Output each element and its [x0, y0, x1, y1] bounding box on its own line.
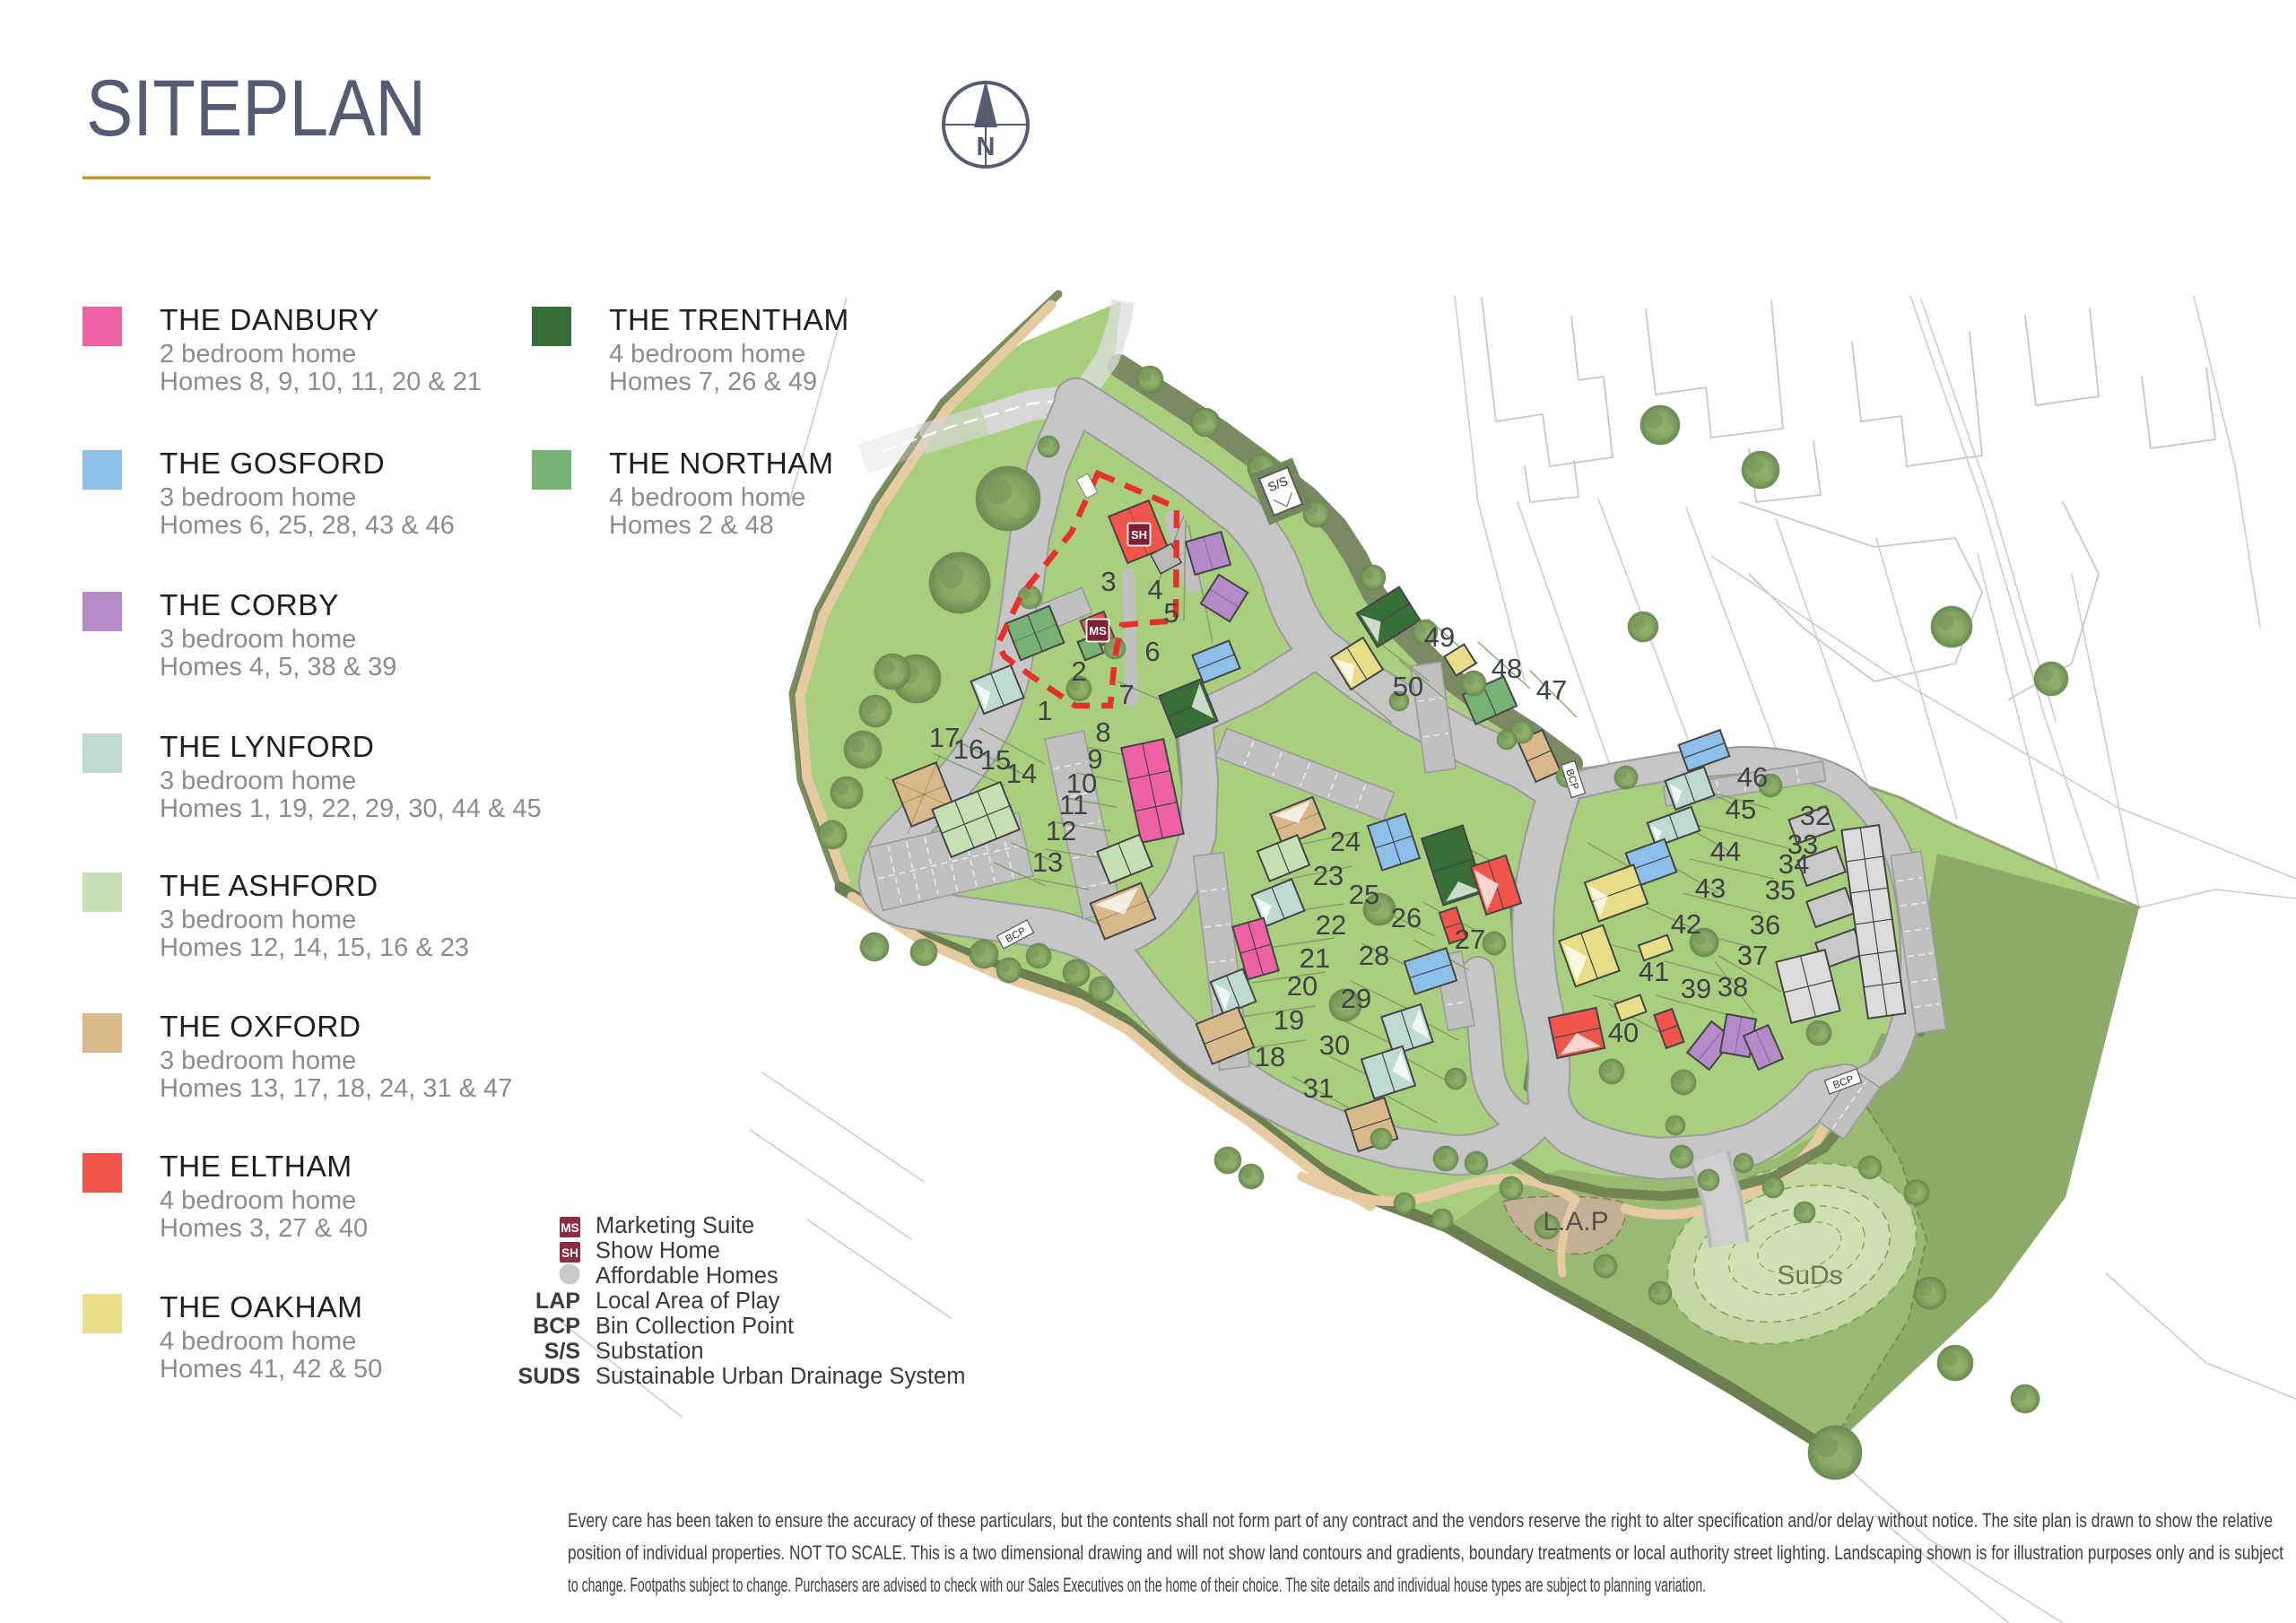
svg-text:42: 42 — [1671, 908, 1701, 940]
svg-text:29: 29 — [1341, 983, 1371, 1014]
svg-text:MS: MS — [1089, 624, 1107, 638]
svg-text:17: 17 — [929, 722, 960, 753]
svg-text:48: 48 — [1492, 653, 1522, 684]
svg-text:Homes 4, 5, 38 & 39: Homes 4, 5, 38 & 39 — [160, 653, 396, 681]
svg-text:SITEPLAN: SITEPLAN — [86, 63, 426, 152]
svg-text:Substation: Substation — [596, 1339, 704, 1364]
svg-text:Sustainable Urban Drainage Sys: Sustainable Urban Drainage System — [596, 1364, 965, 1389]
svg-text:40: 40 — [1608, 1017, 1639, 1048]
svg-text:47: 47 — [1536, 674, 1567, 706]
svg-text:Local Area of Play: Local Area of Play — [596, 1289, 780, 1314]
svg-text:45: 45 — [1726, 794, 1756, 825]
svg-text:32: 32 — [1800, 800, 1831, 831]
svg-text:SuDs: SuDs — [1777, 1261, 1842, 1290]
svg-text:30: 30 — [1319, 1029, 1350, 1061]
svg-text:20: 20 — [1287, 970, 1318, 1002]
svg-text:position of individual propert: position of individual properties. NOT T… — [568, 1541, 2283, 1564]
svg-text:to change. Footpaths subject t: to change. Footpaths subject to change. … — [568, 1574, 1706, 1596]
svg-text:MS: MS — [561, 1221, 578, 1235]
svg-text:49: 49 — [1424, 621, 1455, 653]
svg-text:Marketing Suite: Marketing Suite — [596, 1213, 754, 1238]
svg-text:THE TRENTHAM: THE TRENTHAM — [609, 304, 849, 337]
svg-text:4 bedroom home: 4 bedroom home — [609, 483, 805, 512]
svg-text:28: 28 — [1359, 940, 1389, 971]
svg-text:12: 12 — [1046, 815, 1076, 846]
svg-text:27: 27 — [1455, 924, 1485, 955]
svg-text:SH: SH — [1131, 528, 1147, 542]
svg-text:15: 15 — [980, 744, 1011, 776]
svg-text:1: 1 — [1037, 695, 1052, 726]
svg-text:3 bedroom home: 3 bedroom home — [160, 625, 356, 654]
svg-text:Affordable Homes: Affordable Homes — [596, 1263, 778, 1289]
svg-text:THE DANBURY: THE DANBURY — [160, 304, 379, 337]
svg-text:25: 25 — [1349, 879, 1379, 910]
svg-text:23: 23 — [1313, 860, 1344, 891]
svg-text:N: N — [977, 133, 996, 161]
svg-text:Homes 1, 19, 22, 29, 30, 44 &: Homes 1, 19, 22, 29, 30, 44 & 45 — [160, 794, 542, 823]
svg-text:THE CORBY: THE CORBY — [160, 589, 339, 622]
svg-text:36: 36 — [1750, 909, 1780, 941]
svg-text:Homes 7, 26 & 49: Homes 7, 26 & 49 — [609, 368, 817, 396]
svg-text:4 bedroom home: 4 bedroom home — [160, 1327, 356, 1356]
svg-text:3 bedroom home: 3 bedroom home — [160, 767, 356, 795]
svg-text:21: 21 — [1300, 942, 1330, 974]
svg-text:3 bedroom home: 3 bedroom home — [160, 483, 356, 512]
svg-text:THE NORTHAM: THE NORTHAM — [609, 447, 834, 481]
svg-text:Every care has been taken to e: Every care has been taken to ensure the … — [568, 1509, 2273, 1532]
svg-text:35: 35 — [1765, 874, 1796, 906]
svg-text:24: 24 — [1330, 826, 1361, 857]
svg-text:Homes 3, 27 & 40: Homes 3, 27 & 40 — [160, 1214, 368, 1243]
svg-text:22: 22 — [1316, 909, 1346, 941]
svg-text:S/S: S/S — [544, 1339, 580, 1364]
svg-text:18: 18 — [1255, 1041, 1285, 1072]
svg-text:7: 7 — [1118, 679, 1134, 710]
svg-text:4: 4 — [1147, 574, 1162, 605]
svg-text:2 bedroom home: 2 bedroom home — [160, 340, 356, 369]
svg-text:THE OAKHAM: THE OAKHAM — [160, 1291, 363, 1324]
svg-text:46: 46 — [1737, 761, 1768, 793]
svg-text:2: 2 — [1071, 655, 1086, 687]
svg-text:31: 31 — [1303, 1072, 1334, 1104]
svg-text:L.A.P: L.A.P — [1543, 1207, 1608, 1237]
svg-text:THE ASHFORD: THE ASHFORD — [160, 870, 378, 903]
svg-text:BCP: BCP — [533, 1314, 580, 1339]
svg-text:41: 41 — [1639, 956, 1669, 987]
svg-text:44: 44 — [1710, 836, 1741, 867]
svg-text:Homes 6, 25, 28, 43 & 46: Homes 6, 25, 28, 43 & 46 — [160, 511, 455, 540]
svg-text:Homes 8, 9, 10, 11, 20 & 21: Homes 8, 9, 10, 11, 20 & 21 — [160, 368, 482, 396]
svg-text:THE ELTHAM: THE ELTHAM — [160, 1150, 352, 1184]
svg-text:Homes 13, 17, 18, 24, 31 & 47: Homes 13, 17, 18, 24, 31 & 47 — [160, 1074, 512, 1103]
svg-text:3 bedroom home: 3 bedroom home — [160, 906, 356, 934]
svg-text:LAP: LAP — [535, 1289, 580, 1314]
svg-text:37: 37 — [1737, 940, 1768, 971]
svg-text:SH: SH — [561, 1246, 578, 1260]
svg-text:5: 5 — [1163, 597, 1178, 629]
svg-text:26: 26 — [1391, 902, 1422, 933]
svg-text:13: 13 — [1032, 846, 1063, 878]
svg-text:Homes 2 & 48: Homes 2 & 48 — [609, 511, 774, 540]
svg-text:3: 3 — [1100, 566, 1116, 597]
svg-text:4 bedroom home: 4 bedroom home — [160, 1186, 356, 1215]
svg-text:3 bedroom home: 3 bedroom home — [160, 1046, 356, 1075]
svg-text:6: 6 — [1144, 636, 1160, 667]
svg-text:THE OXFORD: THE OXFORD — [160, 1011, 361, 1044]
svg-text:THE LYNFORD: THE LYNFORD — [160, 731, 374, 764]
svg-text:50: 50 — [1393, 671, 1423, 702]
svg-text:Homes 12, 14, 15, 16 & 23: Homes 12, 14, 15, 16 & 23 — [160, 933, 469, 962]
svg-text:THE GOSFORD: THE GOSFORD — [160, 447, 385, 481]
svg-text:Show Home: Show Home — [596, 1238, 720, 1263]
svg-text:19: 19 — [1274, 1004, 1304, 1036]
svg-text:38: 38 — [1718, 971, 1748, 1002]
svg-text:Homes 41, 42 & 50: Homes 41, 42 & 50 — [160, 1355, 382, 1384]
svg-text:4 bedroom home: 4 bedroom home — [609, 340, 805, 369]
svg-text:Bin Collection Point: Bin Collection Point — [596, 1314, 794, 1339]
svg-text:SUDS: SUDS — [518, 1364, 580, 1389]
svg-text:43: 43 — [1695, 872, 1726, 904]
svg-text:39: 39 — [1681, 973, 1711, 1004]
